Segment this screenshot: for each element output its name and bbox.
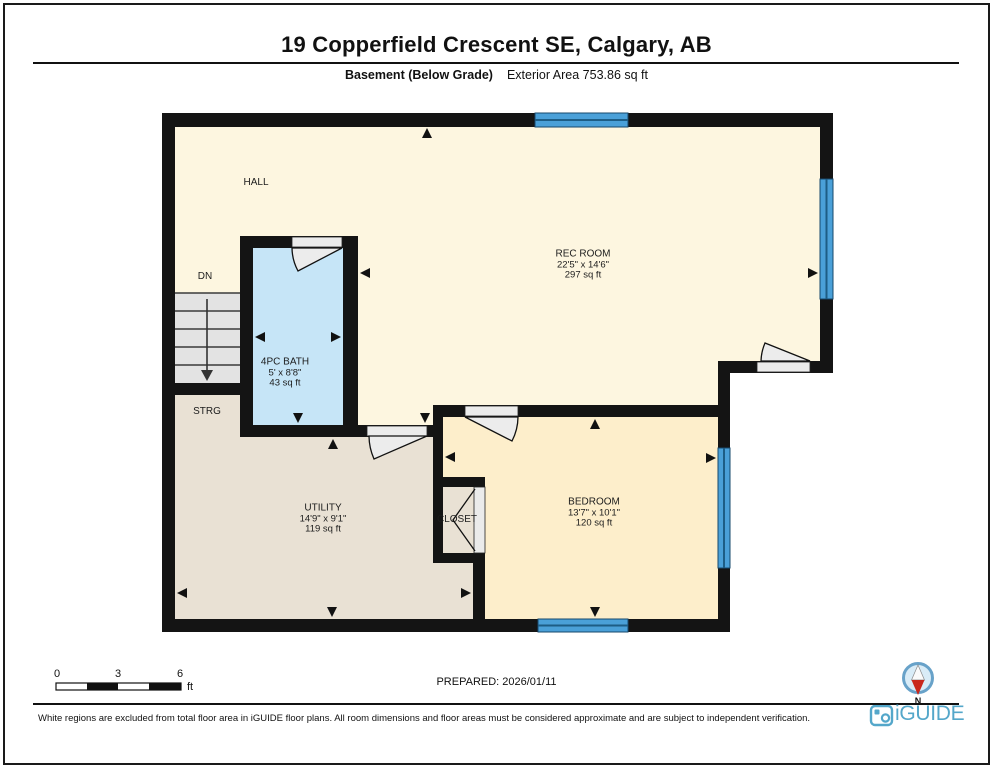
staircase (175, 293, 240, 383)
closet-label: CLOSET (437, 515, 477, 526)
wall-exterior-bottom (162, 619, 730, 632)
window-top (535, 113, 628, 127)
bedroom-label: BEDROOM 13'7" x 10'1" 120 sq ft (568, 497, 620, 529)
wall-bedroom-left (433, 405, 443, 563)
rec-door-opening (757, 362, 810, 372)
utility-door-opening (367, 426, 427, 436)
wall-exterior-left (162, 113, 175, 632)
floor-plan-drawing (0, 0, 993, 768)
window-right-lower (718, 448, 730, 568)
wall-utility-bedroom (473, 553, 485, 632)
window-right-upper (820, 179, 833, 299)
prepared-date: PREPARED: 2026/01/11 (0, 676, 993, 688)
iguide-brand-text: iGUIDE (895, 702, 964, 726)
iguide-brand: iGUIDE (868, 702, 964, 726)
bedroom-door-opening (465, 406, 518, 416)
utility-label: UTILITY 14'9" x 9'1" 119 sq ft (300, 503, 347, 535)
window-bottom (538, 619, 628, 632)
bath-label: 4PC BATH 5' x 8'8" 43 sq ft (261, 357, 309, 389)
stairs-dn-label: DN (198, 272, 212, 283)
wall-under-stairs (175, 383, 252, 395)
floor-plan-page: 19 Copperfield Crescent SE, Calgary, AB … (0, 0, 993, 768)
rec-room-label: REC ROOM 22'5" x 14'6" 297 sq ft (556, 249, 611, 281)
bath-door-opening (292, 237, 342, 247)
hall-label: HALL (243, 178, 268, 189)
footer-divider (33, 703, 959, 705)
utility-floor-left (175, 395, 240, 619)
wall-exterior-top (162, 113, 833, 127)
footer-disclaimer: White regions are excluded from total fl… (38, 713, 838, 724)
storage-label: STRG (193, 407, 221, 418)
bath-floor (253, 248, 343, 425)
